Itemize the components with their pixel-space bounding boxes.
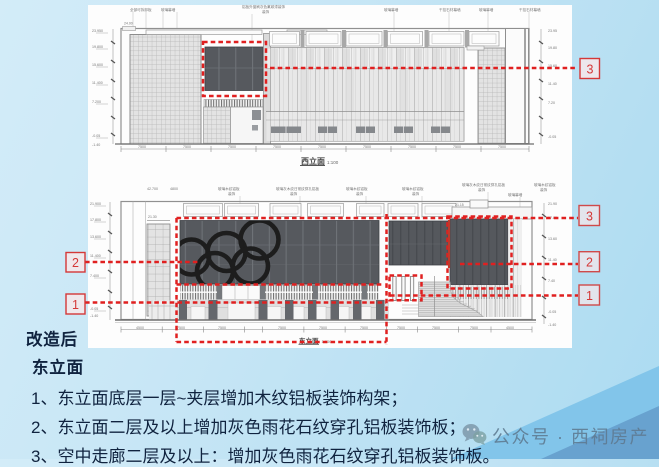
svg-text:1: 1 [72,298,79,312]
svg-text:玻璃灰木纹日常纹穿孔铝板: 玻璃灰木纹日常纹穿孔铝板 [276,186,320,191]
svg-text:7500: 7500 [218,326,226,330]
svg-text:11.40: 11.40 [548,258,557,262]
svg-text:2: 2 [586,256,593,270]
svg-text:装饰: 装饰 [356,191,364,196]
svg-text:15.600: 15.600 [92,63,103,67]
svg-text:3: 3 [587,63,594,77]
svg-text:干挂石材幕墙: 干挂石材幕墙 [439,7,461,12]
svg-text:玻璃灰木纹日常纹穿孔铝板: 玻璃灰木纹日常纹穿孔铝板 [462,182,506,187]
svg-text:装饰: 装饰 [540,187,548,192]
svg-text:7500: 7500 [228,145,236,149]
svg-text:西立面: 西立面 [301,156,325,166]
svg-text:42.700: 42.700 [147,187,158,191]
svg-text:铝板外窗刷灰色氟碳漆装饰: 铝板外窗刷灰色氟碳漆装饰 [242,4,286,9]
svg-text:21.900: 21.900 [90,202,101,206]
svg-text:13.600: 13.600 [90,235,101,239]
svg-text:玻璃幕墙: 玻璃幕墙 [384,7,399,12]
svg-text:19.800: 19.800 [92,45,103,49]
svg-text:玻璃幕墙: 玻璃幕墙 [479,7,494,12]
svg-text:7500: 7500 [363,145,371,149]
svg-text:-1.40: -1.40 [90,314,98,318]
svg-text:13.60: 13.60 [548,237,557,241]
svg-text:17.800: 17.800 [90,218,101,222]
svg-text:玻璃幕墙: 玻璃幕墙 [508,192,523,197]
svg-text:21.30: 21.30 [148,215,157,219]
svg-text:7500: 7500 [498,145,506,149]
svg-text:11.40: 11.40 [548,82,557,86]
svg-text:7500: 7500 [397,326,405,330]
svg-text:4500: 4500 [136,326,144,330]
svg-text:7.400: 7.400 [90,274,99,278]
svg-text:7500: 7500 [183,145,191,149]
svg-text:23.950: 23.950 [92,29,103,33]
svg-text:2: 2 [72,256,79,270]
svg-text:全部可拆卸板: 全部可拆卸板 [130,7,152,12]
svg-text:东立面: 东立面 [299,336,319,345]
svg-text:-0.05: -0.05 [92,134,100,138]
svg-text:19.80: 19.80 [548,46,557,50]
svg-text:1: 1 [586,289,593,303]
svg-text:玻璃幕墙: 玻璃幕墙 [161,7,176,12]
svg-text:7500: 7500 [408,145,416,149]
svg-text:7500: 7500 [278,326,286,330]
svg-text:7500: 7500 [273,145,281,149]
svg-text:4500: 4500 [506,326,514,330]
svg-text:装饰: 装饰 [478,187,486,192]
svg-text:-1.40: -1.40 [548,323,556,327]
svg-text:11.400: 11.400 [90,254,101,258]
svg-text:干挂石材幕墙: 干挂石材幕墙 [519,7,541,12]
svg-text:7500: 7500 [318,145,326,149]
svg-text:21.90: 21.90 [548,202,557,206]
svg-text:7.200: 7.200 [92,100,101,104]
svg-text:7500: 7500 [470,326,478,330]
svg-text:7500: 7500 [432,326,440,330]
svg-text:7500: 7500 [138,145,146,149]
svg-text:23.95: 23.95 [548,29,557,33]
svg-text:玻璃木纹铝板: 玻璃木纹铝板 [218,186,240,191]
svg-text:-0.05: -0.05 [548,310,556,314]
svg-text:24.00: 24.00 [124,22,133,26]
svg-text:3: 3 [586,210,593,224]
svg-text:-1.40: -1.40 [92,143,100,147]
svg-text:装饰: 装饰 [262,9,270,14]
svg-text:装饰: 装饰 [228,191,236,196]
svg-text:7500: 7500 [319,326,327,330]
svg-text:1:100: 1:100 [327,160,339,165]
svg-text:-0.05: -0.05 [90,307,98,311]
svg-text:21.15: 21.15 [455,203,464,207]
svg-text:玻璃木纹铝板: 玻璃木纹铝板 [402,186,424,191]
svg-text:玻璃木纹铝板: 玻璃木纹铝板 [346,186,368,191]
svg-text:玻璃木纹铝板: 玻璃木纹铝板 [534,182,556,187]
svg-text:11.400: 11.400 [92,81,103,85]
svg-text:7.40: 7.40 [548,279,555,283]
svg-text:-0.05: -0.05 [548,135,556,139]
svg-text:7.20: 7.20 [548,101,555,105]
svg-text:7500: 7500 [453,145,461,149]
svg-text:4800: 4800 [170,187,178,191]
svg-text:7500: 7500 [177,326,185,330]
svg-text:装饰: 装饰 [412,191,420,196]
svg-text:7500: 7500 [360,326,368,330]
svg-text:装饰: 装饰 [290,191,298,196]
